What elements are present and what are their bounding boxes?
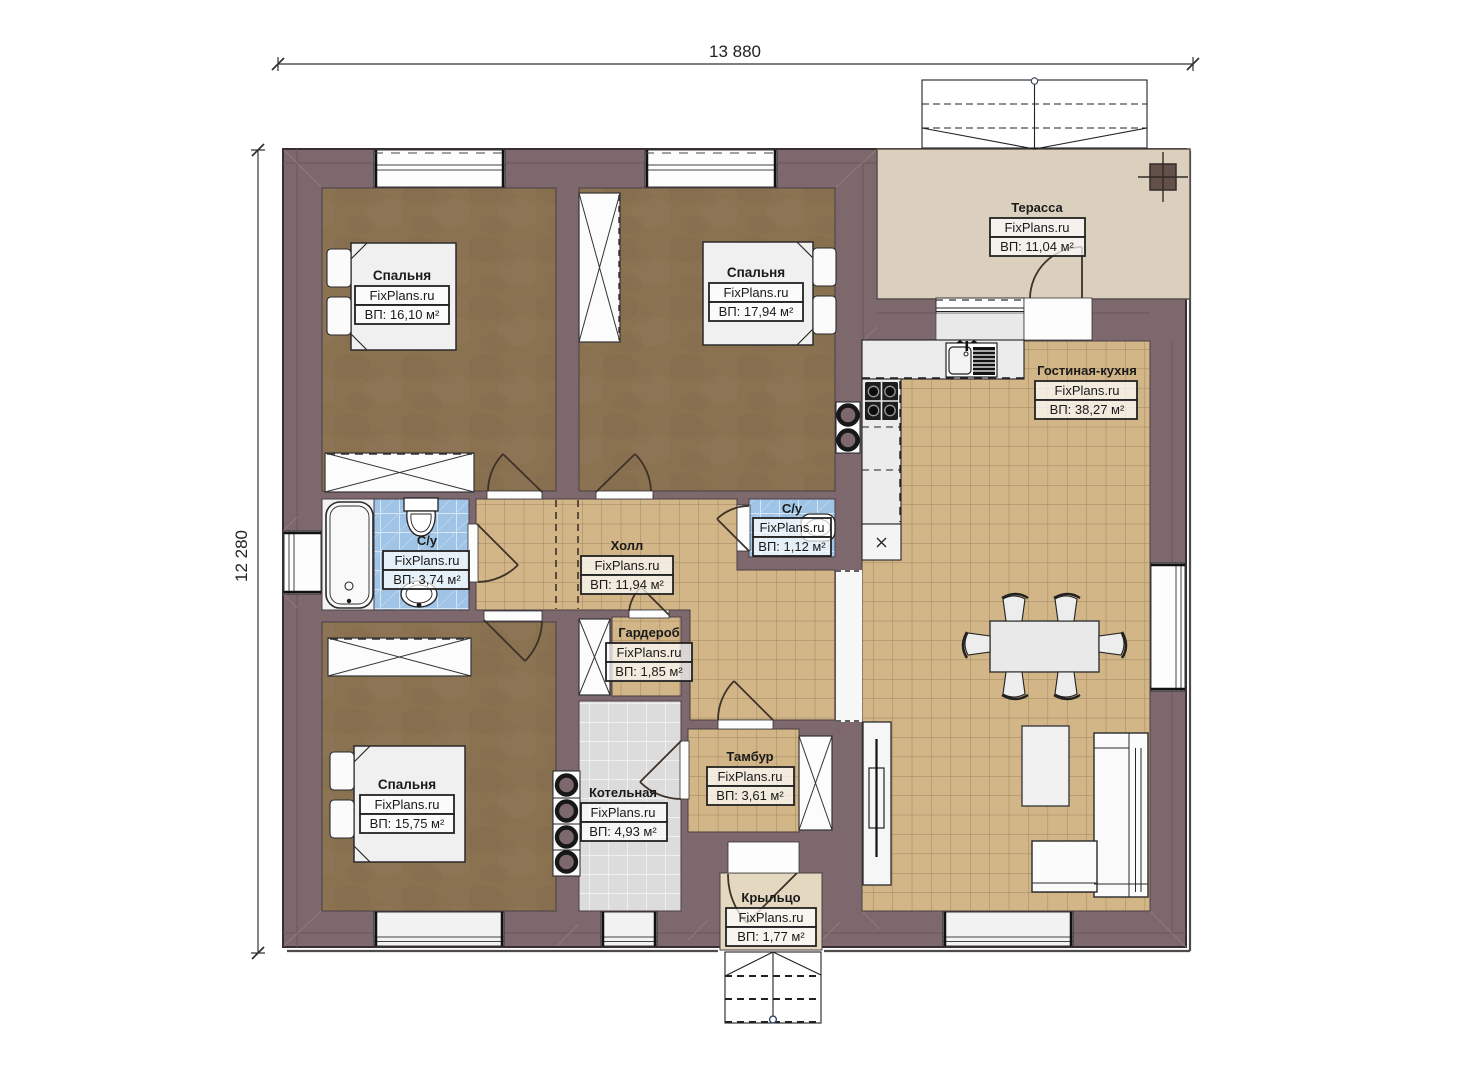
svg-text:FixPlans.ru: FixPlans.ru [723,285,788,300]
svg-text:FixPlans.ru: FixPlans.ru [590,805,655,820]
svg-text:12 280: 12 280 [232,530,251,582]
svg-text:FixPlans.ru: FixPlans.ru [616,645,681,660]
svg-text:ВП: 16,10 м²: ВП: 16,10 м² [365,307,440,322]
svg-text:13 880: 13 880 [709,42,761,61]
svg-text:FixPlans.ru: FixPlans.ru [374,797,439,812]
svg-text:ВП: 15,75 м²: ВП: 15,75 м² [370,816,445,831]
svg-text:FixPlans.ru: FixPlans.ru [1004,220,1069,235]
svg-text:Терасса: Терасса [1011,200,1063,215]
svg-text:FixPlans.ru: FixPlans.ru [1054,383,1119,398]
svg-text:ВП: 1,12 м²: ВП: 1,12 м² [758,539,826,554]
svg-text:С/у: С/у [417,533,438,548]
svg-text:С/у: С/у [782,501,803,516]
svg-text:Спальня: Спальня [373,268,431,283]
svg-text:Тамбур: Тамбур [726,749,773,764]
svg-text:Холл: Холл [611,538,644,553]
svg-text:ВП: 1,85 м²: ВП: 1,85 м² [615,664,683,679]
svg-text:ВП: 38,27 м²: ВП: 38,27 м² [1050,402,1125,417]
svg-text:ВП: 1,77 м²: ВП: 1,77 м² [737,929,805,944]
svg-text:Гостиная-кухня: Гостиная-кухня [1037,363,1137,378]
svg-text:ВП: 4,93 м²: ВП: 4,93 м² [589,824,657,839]
svg-text:ВП: 11,94 м²: ВП: 11,94 м² [590,577,664,592]
svg-text:FixPlans.ru: FixPlans.ru [594,558,659,573]
svg-text:ВП: 17,94 м²: ВП: 17,94 м² [719,304,794,319]
svg-text:Спальня: Спальня [378,777,436,792]
svg-text:Котельная: Котельная [589,785,657,800]
svg-text:Гардероб: Гардероб [618,625,679,640]
svg-text:FixPlans.ru: FixPlans.ru [717,769,782,784]
svg-text:ВП: 3,74 м²: ВП: 3,74 м² [393,572,461,587]
svg-text:Крыльцо: Крыльцо [741,890,800,905]
svg-text:FixPlans.ru: FixPlans.ru [369,288,434,303]
svg-text:FixPlans.ru: FixPlans.ru [738,910,803,925]
svg-text:ВП: 3,61 м²: ВП: 3,61 м² [716,788,784,803]
svg-text:ВП: 11,04 м²: ВП: 11,04 м² [1000,239,1074,254]
svg-text:FixPlans.ru: FixPlans.ru [759,520,824,535]
svg-text:FixPlans.ru: FixPlans.ru [394,553,459,568]
svg-text:Спальня: Спальня [727,265,785,280]
